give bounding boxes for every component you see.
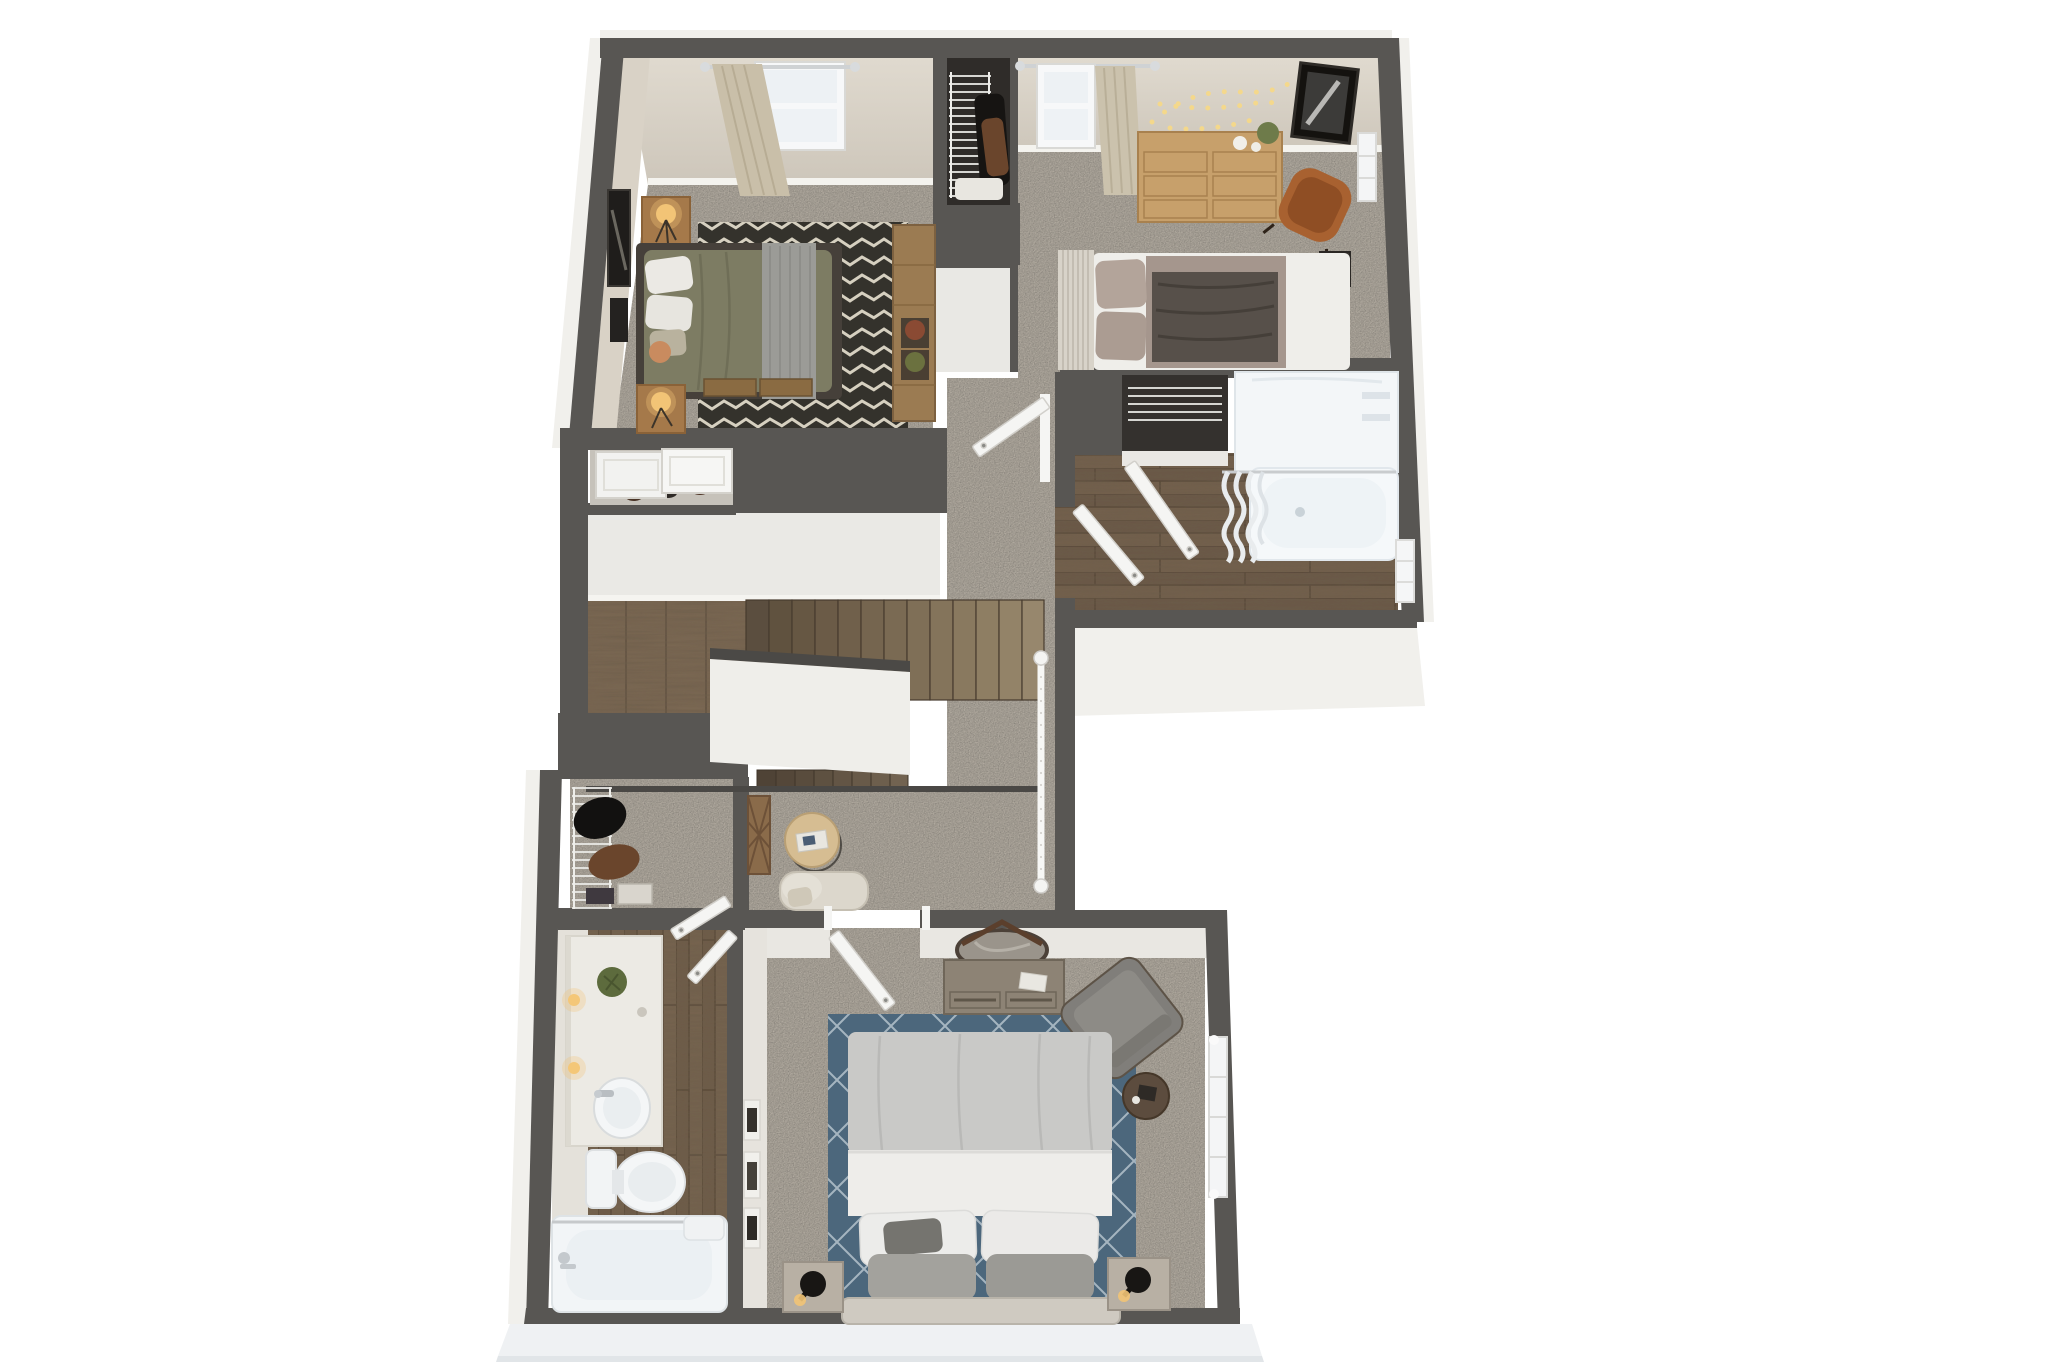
round-cushion [649,341,671,363]
cream-armchair [780,872,868,910]
pillow-1 [644,255,694,295]
vase-1 [1233,136,1247,150]
bed [1058,250,1350,370]
foundation-slab-edge [496,1356,1264,1362]
wall-art [608,190,630,342]
north-wall [600,38,1390,58]
decor-ladder-art [748,796,770,874]
pillow-charcoal [883,1218,944,1257]
bathtub [552,1216,727,1312]
window [1209,1035,1227,1199]
pillow-2 [1095,311,1147,361]
window [1037,64,1095,148]
stair-half-wall [710,659,910,775]
sliding-doors [596,449,732,498]
closet-bedroom-3 [947,58,1010,205]
master-north-wall-right [920,910,1217,928]
soap [637,1007,647,1017]
door-jamb [922,906,930,930]
underbed-drawer-2 [760,379,812,396]
vase-2 [1251,142,1261,152]
book-stack [1019,972,1047,991]
olive-bed [636,243,842,399]
nightstand-bottom [637,385,685,433]
hanging-clothes [974,93,1010,187]
linen-closet [590,449,733,505]
bathroom-upper-south-wall [1055,610,1417,628]
drain [1295,507,1305,517]
pillow-gray-2 [986,1254,1094,1300]
hall-east-wall-upper [1055,372,1075,507]
tub-shower [1222,372,1398,562]
nightstand-right [1108,1258,1170,1310]
vanity [562,936,662,1146]
towel-bar [684,1216,724,1240]
round-side-table [1123,1073,1169,1119]
closet3-west-wall [933,38,947,208]
dresser [1138,122,1282,222]
door-jamb [824,906,832,930]
pillow-2 [645,294,694,332]
storage-box-1 [618,884,652,904]
stairwell-north-face [586,513,940,601]
master-north-wall-left [727,910,830,928]
plant [1257,122,1279,144]
underbed-drawer-1 [704,379,756,396]
hall-east-wall-lower [1055,598,1075,917]
console-table [893,225,935,421]
closet-strip-face [936,266,1012,372]
duvet [848,1032,1112,1154]
bedroom2-south-wall [566,428,947,450]
hall-north-wall-mass [733,447,947,513]
floor-plan-3d-render [0,0,2048,1365]
toilet [586,1150,685,1212]
stair-void-lip [586,786,1043,792]
headboard [842,1298,1120,1324]
foundation-slab [498,1324,1262,1356]
bathroom-upper-door-strip [1055,505,1075,600]
walkin-east-wall [733,777,749,912]
nightstand-left [783,1262,843,1312]
window [1396,540,1414,602]
pillow-1 [1095,259,1147,310]
folded-linens [955,178,1003,200]
slat-headboard [1058,250,1094,370]
framed-art [1292,63,1359,144]
leaning-frames [744,1100,760,1248]
side-window [1358,133,1376,201]
stairwell-west-wall [560,428,588,715]
storage-box-2 [586,888,614,904]
bath-master-east-wall [727,928,743,1324]
nook-wire-shelf [1128,382,1222,424]
closet3-south-wall [933,203,1020,265]
folded-sheet [848,1150,1112,1216]
pillow-gray-1 [868,1254,976,1300]
nightstand-top [642,197,690,249]
